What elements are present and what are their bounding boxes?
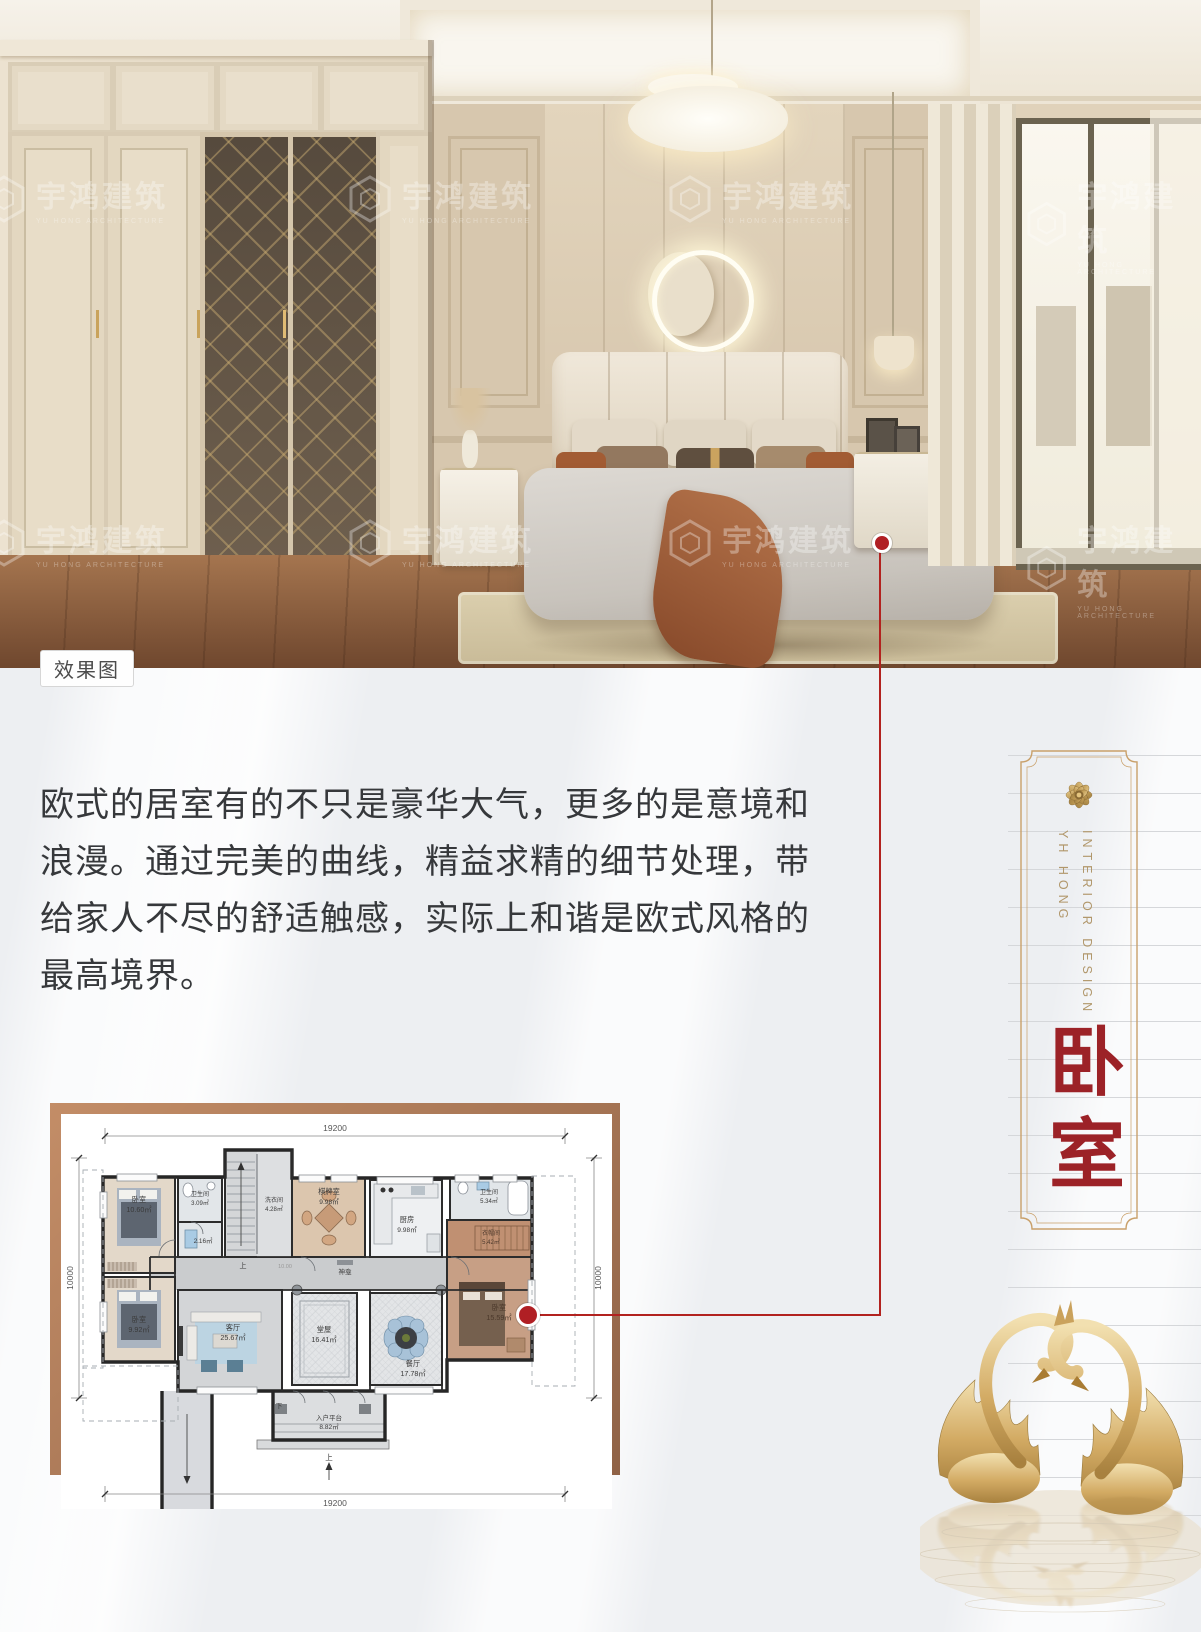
room-label: 卧室	[132, 1315, 146, 1324]
wardrobe-door	[8, 132, 108, 564]
window-sill	[1016, 548, 1201, 564]
wardrobe-door	[376, 132, 432, 564]
banner-title: 卧室	[1024, 1022, 1134, 1206]
nightstand-right	[854, 452, 936, 548]
room-area: 4.28㎡	[265, 1205, 283, 1213]
room-area: 8.82㎡	[319, 1422, 339, 1431]
callout-line-vertical	[879, 547, 881, 1316]
room-area: 25.67㎡	[220, 1333, 245, 1342]
description-line: 给家人不尽的舒适触感，实际上和谐是欧式风格的	[40, 891, 810, 948]
wardrobe-crown	[0, 40, 432, 56]
wardrobe-cabinet	[216, 62, 322, 134]
wardrobe-cabinet	[320, 62, 428, 134]
room-label: 衣帽间	[482, 1229, 500, 1237]
shrine-label: 神龛	[339, 1267, 353, 1276]
pendant-lamp	[874, 336, 914, 370]
side-banner: INTERIOR DESIGN YH HONG 卧室	[1020, 750, 1138, 1230]
room-area: 5.42㎡	[482, 1238, 500, 1246]
callout-dot-plan	[516, 1303, 540, 1327]
room-label: 餐厅	[406, 1359, 420, 1368]
window-mullion	[1088, 124, 1094, 552]
dim-bottom: 19200	[323, 1498, 347, 1508]
wardrobe-glass-door	[288, 132, 382, 566]
poster-page: 宇鸿建筑YU HONG ARCHITECTURE 宇鸿建筑YU HONG ARC…	[0, 0, 1201, 1632]
wardrobe-glass-door	[200, 132, 294, 566]
dining-table	[384, 1316, 428, 1360]
room-area: 3.09㎡	[191, 1199, 209, 1207]
room-label: 棋牌室	[318, 1187, 340, 1196]
entry-up-label: 上	[325, 1453, 333, 1462]
room-area: 9.92㎡	[128, 1325, 149, 1334]
description-line: 欧式的居室有的不只是豪华大气，更多的是意境和	[40, 777, 810, 834]
swan-pair	[938, 1300, 1183, 1515]
room-label: 厨房	[400, 1215, 414, 1224]
wall-edge-shadow	[428, 40, 434, 566]
shrine-cabinet	[337, 1260, 353, 1265]
description-paragraph: 欧式的居室有的不只是豪华大气，更多的是意境和 浪漫。通过完美的曲线，精益求精的细…	[40, 777, 810, 1005]
callout-dot-photo	[872, 533, 892, 553]
room-area: 2.16㎡	[194, 1236, 213, 1245]
wardrobe-cabinet	[8, 62, 114, 134]
curtain	[928, 104, 1016, 566]
pendant-cord	[892, 92, 894, 338]
swan-right	[1054, 1326, 1183, 1515]
room-cloak	[447, 1220, 532, 1257]
banner-subtitle-en-line2: YH HONG	[1056, 830, 1070, 923]
wardrobe-handle	[283, 310, 286, 338]
description-line: 最高境界。	[40, 948, 810, 1005]
room-area: 5.34㎡	[480, 1197, 498, 1205]
wardrobe-handle	[96, 310, 99, 338]
dim-top: 19200	[323, 1123, 347, 1133]
room-area: 10.60㎡	[126, 1205, 151, 1214]
room-label: 卫生间	[191, 1190, 209, 1198]
wall-lamp-ring	[652, 250, 754, 352]
building-silhouette	[1106, 286, 1152, 446]
sheer-curtain	[1150, 110, 1201, 562]
room-label: 入户平台	[316, 1413, 342, 1422]
room-label: 堂屋	[317, 1325, 331, 1334]
chandelier	[628, 86, 788, 152]
room-label: 卧室	[132, 1195, 146, 1204]
room-area: 15.59㎡	[486, 1313, 511, 1322]
building-silhouette	[1036, 306, 1076, 446]
wardrobe-cabinet	[112, 62, 218, 134]
stairs-up-label: 上	[240, 1261, 247, 1270]
wardrobe-door	[104, 132, 204, 564]
nightstand-left	[440, 468, 518, 566]
callout-line-horizontal	[528, 1314, 880, 1316]
room-label: 卧室	[492, 1303, 506, 1312]
room-bedroom-1	[103, 1177, 175, 1273]
dim-right: 10000	[593, 1266, 603, 1290]
room-area: 9.98㎡	[397, 1225, 417, 1234]
wardrobe	[0, 40, 432, 566]
swan-crest	[1054, 1300, 1074, 1326]
banner-flower-icon	[1066, 782, 1092, 808]
elevation-label: 10.00	[278, 1264, 292, 1270]
room-area: 16.41㎡	[311, 1335, 336, 1344]
dim-left: 10000	[65, 1266, 75, 1290]
pampas-grass	[448, 388, 492, 436]
room-bathroom-1	[178, 1178, 222, 1222]
wall-panel	[448, 136, 540, 408]
room-area: 17.78㎡	[400, 1369, 425, 1378]
banner-subtitle-en-line1: INTERIOR DESIGN	[1080, 830, 1094, 1016]
golden-swans-image	[920, 1240, 1201, 1632]
room-label: 洗衣间	[265, 1196, 283, 1204]
down-label: 下	[276, 1402, 283, 1410]
description-line: 浪漫。通过完美的曲线，精益求精的细节处理，带	[40, 834, 810, 891]
room-label: 客厅	[226, 1323, 240, 1332]
room-area: 9.98㎡	[319, 1197, 339, 1206]
render-label: 效果图	[40, 650, 134, 687]
bedroom-photo: 宇鸿建筑YU HONG ARCHITECTURE 宇鸿建筑YU HONG ARC…	[0, 0, 1201, 668]
room-label: 卫生间	[480, 1188, 498, 1196]
wardrobe-handle	[197, 310, 200, 338]
